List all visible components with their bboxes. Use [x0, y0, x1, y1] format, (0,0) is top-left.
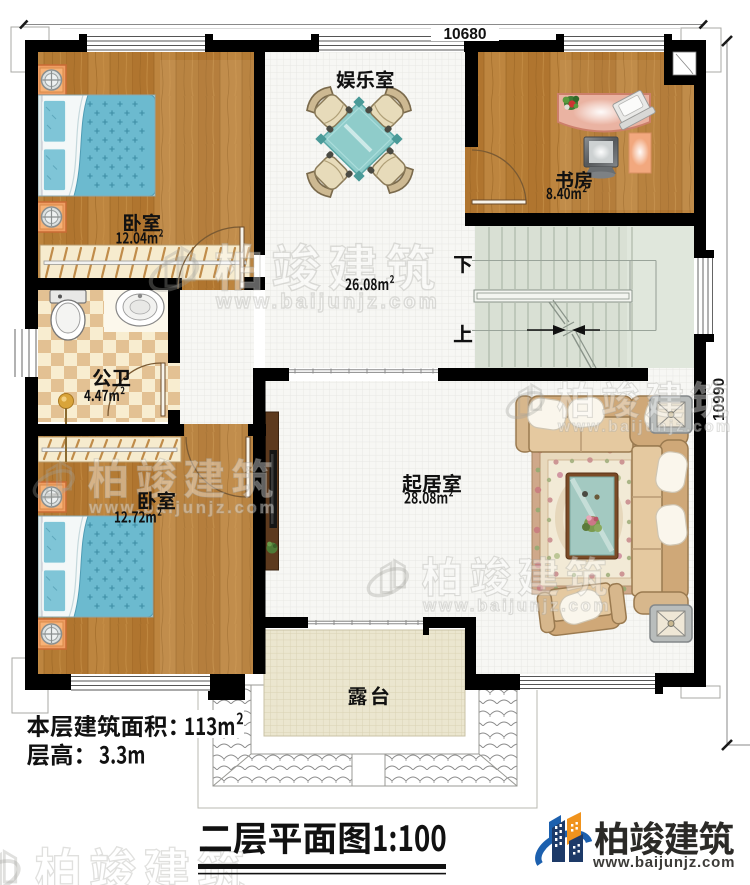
- svg-text:www.baijunjz.com: www.baijunjz.com: [592, 854, 735, 871]
- svg-text:10680: 10680: [443, 26, 486, 43]
